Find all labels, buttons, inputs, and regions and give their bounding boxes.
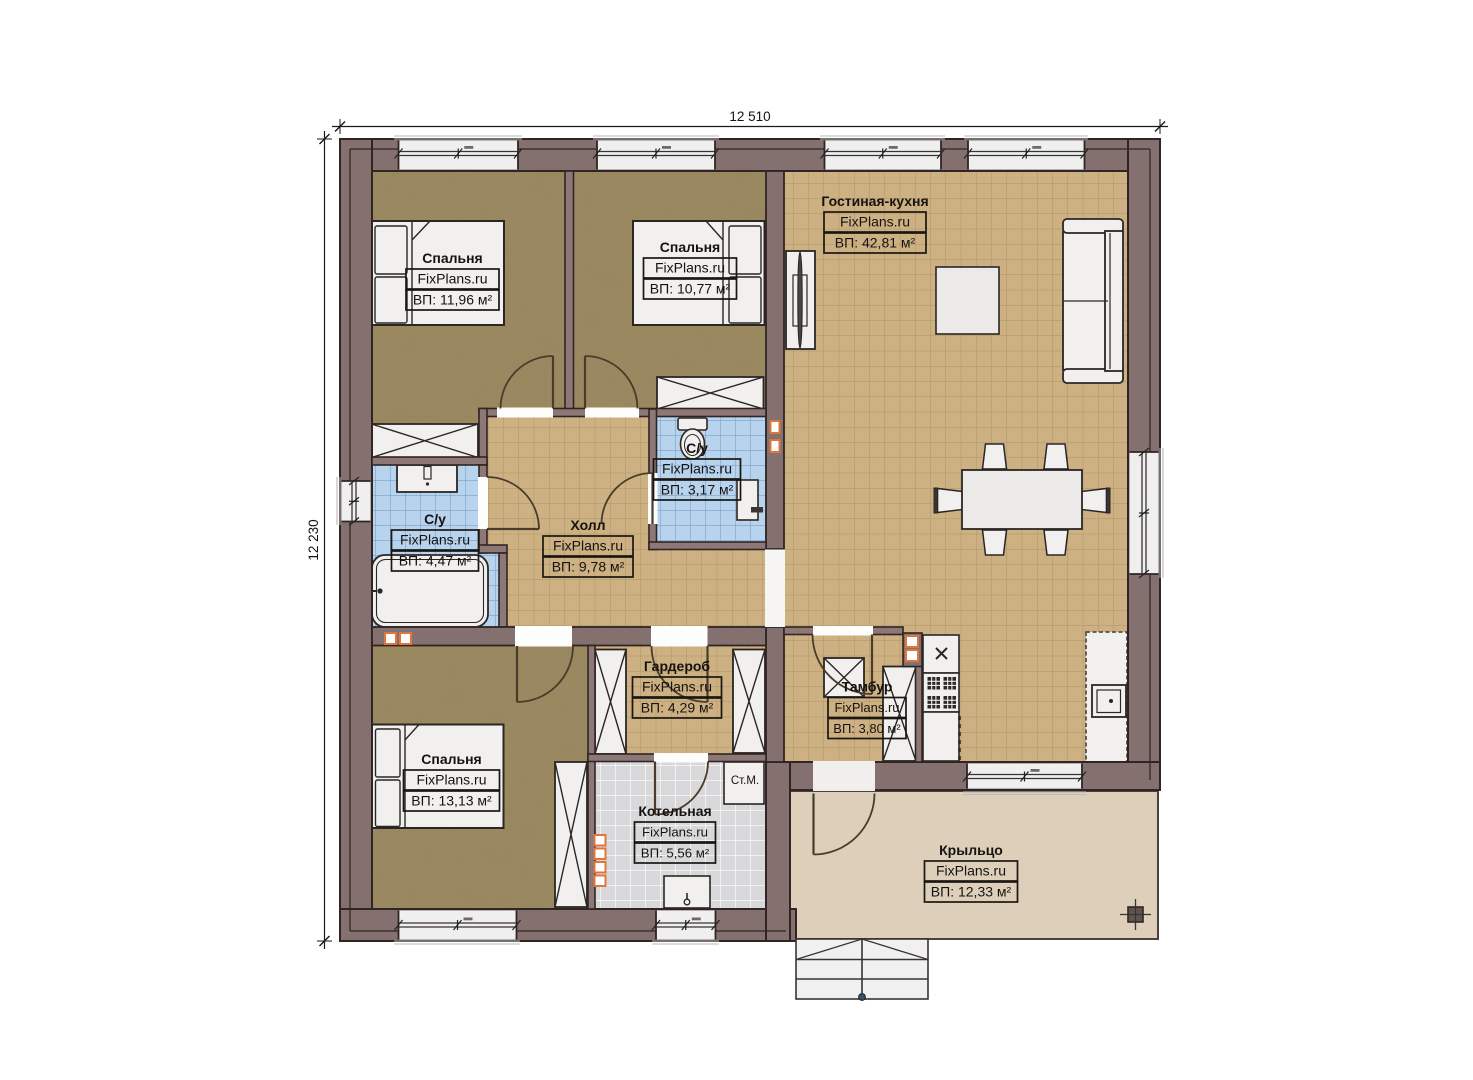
svg-text:С/у: С/у bbox=[686, 440, 708, 456]
svg-text:Котельная: Котельная bbox=[638, 803, 711, 819]
svg-text:FixPlans.ru: FixPlans.ru bbox=[553, 538, 623, 554]
svg-text:ВП: 12,33 м²: ВП: 12,33 м² bbox=[931, 884, 1012, 900]
svg-text:Холл: Холл bbox=[570, 517, 605, 533]
svg-text:Спальня: Спальня bbox=[660, 239, 720, 255]
svg-text:Тамбур: Тамбур bbox=[842, 679, 893, 695]
svg-text:FixPlans.ru: FixPlans.ru bbox=[642, 679, 712, 695]
svg-text:Гостиная-кухня: Гостиная-кухня bbox=[821, 193, 928, 209]
svg-text:FixPlans.ru: FixPlans.ru bbox=[655, 260, 725, 276]
svg-text:ВП: 4,47 м²: ВП: 4,47 м² bbox=[399, 553, 472, 569]
svg-text:ВП: 4,29 м²: ВП: 4,29 м² bbox=[641, 700, 714, 716]
svg-text:12 510: 12 510 bbox=[729, 109, 770, 124]
svg-text:Спальня: Спальня bbox=[421, 751, 481, 767]
svg-text:FixPlans.ru: FixPlans.ru bbox=[642, 825, 708, 840]
svg-text:ВП: 9,78 м²: ВП: 9,78 м² bbox=[552, 559, 625, 575]
svg-text:Спальня: Спальня bbox=[422, 250, 482, 266]
svg-text:С/у: С/у bbox=[424, 511, 446, 527]
svg-text:Гардероб: Гардероб bbox=[644, 658, 711, 674]
svg-text:Крыльцо: Крыльцо bbox=[939, 842, 1003, 858]
svg-text:FixPlans.ru: FixPlans.ru bbox=[936, 863, 1006, 879]
svg-text:FixPlans.ru: FixPlans.ru bbox=[840, 214, 910, 230]
svg-text:FixPlans.ru: FixPlans.ru bbox=[416, 772, 486, 788]
svg-text:FixPlans.ru: FixPlans.ru bbox=[417, 271, 487, 287]
svg-text:Ст.М.: Ст.М. bbox=[731, 775, 759, 787]
svg-text:FixPlans.ru: FixPlans.ru bbox=[400, 532, 470, 548]
svg-text:FixPlans.ru: FixPlans.ru bbox=[662, 461, 732, 477]
svg-text:12 230: 12 230 bbox=[306, 519, 321, 560]
svg-text:ВП: 3,17 м²: ВП: 3,17 м² bbox=[661, 482, 734, 498]
svg-text:FixPlans.ru: FixPlans.ru bbox=[834, 700, 899, 715]
svg-text:ВП: 5,56 м²: ВП: 5,56 м² bbox=[641, 846, 710, 861]
svg-text:ВП: 10,77 м²: ВП: 10,77 м² bbox=[650, 281, 731, 297]
svg-text:ВП: 42,81 м²: ВП: 42,81 м² bbox=[835, 235, 916, 251]
svg-text:ВП: 3,80 м²: ВП: 3,80 м² bbox=[833, 721, 901, 736]
svg-text:ВП: 13,13 м²: ВП: 13,13 м² bbox=[411, 793, 492, 809]
svg-text:ВП: 11,96 м²: ВП: 11,96 м² bbox=[413, 292, 493, 308]
